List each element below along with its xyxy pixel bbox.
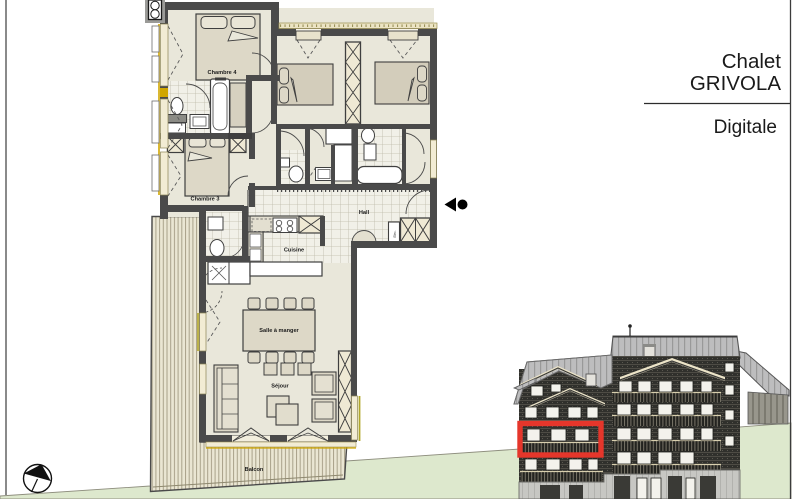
svg-text:Cuisine: Cuisine bbox=[284, 248, 304, 254]
svg-text:Chambre 4: Chambre 4 bbox=[208, 70, 238, 76]
svg-text:Chalet: Chalet bbox=[722, 50, 782, 73]
svg-text:Balcon: Balcon bbox=[245, 467, 264, 473]
svg-text:Séjour: Séjour bbox=[271, 384, 289, 390]
svg-text:Elec.: Elec. bbox=[393, 230, 397, 237]
svg-text:Chambre 3: Chambre 3 bbox=[191, 197, 220, 203]
svg-text:Digitale: Digitale bbox=[714, 117, 777, 138]
svg-text:GRIVOLA: GRIVOLA bbox=[690, 72, 781, 95]
svg-text:Salle à manger: Salle à manger bbox=[259, 328, 299, 334]
svg-text:Hall: Hall bbox=[359, 210, 370, 216]
